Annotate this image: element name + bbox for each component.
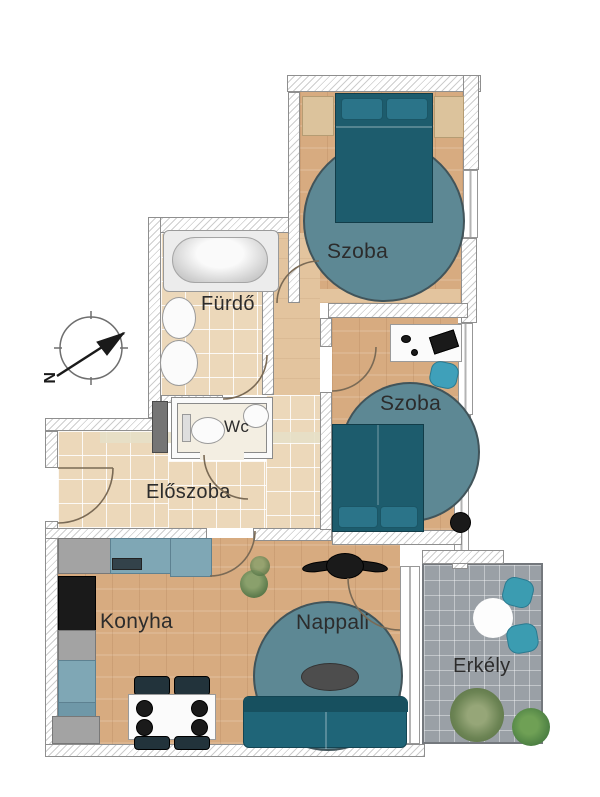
wall-top-bedroom1	[287, 75, 481, 92]
pillow	[380, 506, 418, 528]
sofa-back	[244, 697, 408, 712]
bedroom2-bed	[332, 424, 424, 532]
hallway-floor-mid	[168, 461, 266, 528]
sofa-cushion-split	[325, 712, 327, 749]
sofa	[243, 696, 407, 748]
wall-outer-left-upper	[148, 217, 161, 418]
wall-balcony-top	[422, 550, 504, 564]
wall-bedroom2-living-divider	[332, 530, 462, 545]
place-setting	[191, 719, 208, 736]
coffee-table	[301, 663, 359, 691]
plant-pot	[450, 512, 471, 533]
nightstand	[434, 96, 464, 138]
toilet-tank	[182, 414, 191, 442]
floor-plan: Szoba Fürdő Wc Előszoba Szoba	[0, 0, 600, 797]
washing-machine	[52, 716, 100, 744]
place-setting	[136, 700, 153, 717]
wall-left-above-door	[45, 431, 58, 468]
desk	[390, 324, 462, 362]
bedroom1-bed	[335, 93, 433, 223]
hallway-floor-right	[266, 395, 320, 528]
dining-chair	[134, 736, 170, 750]
balcony-plant	[450, 688, 504, 742]
kitchen-counter	[58, 660, 96, 704]
pillow	[338, 506, 378, 528]
wall-bedroom-divider	[328, 303, 468, 318]
desk-item	[411, 349, 418, 356]
place-setting	[136, 719, 153, 736]
wall-bedroom2-left-top	[320, 318, 332, 347]
dining-table	[128, 694, 216, 740]
pillow	[386, 98, 428, 120]
laptop-icon	[429, 329, 459, 354]
sink	[162, 297, 196, 339]
blanket-fold	[336, 126, 432, 128]
wall-right-1	[463, 75, 479, 170]
compass	[54, 311, 128, 385]
balcony-plant	[512, 708, 550, 746]
north-label: N	[40, 372, 57, 384]
dining-chair	[134, 676, 170, 696]
wall-step	[45, 418, 161, 431]
ceiling-fan-hub	[326, 553, 364, 579]
wall-bedroom2-left-bottom	[320, 392, 332, 530]
toilet	[191, 417, 225, 444]
wc-corner-sink	[243, 404, 269, 428]
compass-circle	[60, 317, 122, 379]
bathtub	[163, 230, 279, 292]
pillow	[341, 98, 383, 120]
dining-chair	[174, 736, 210, 750]
sink	[160, 340, 198, 386]
nightstand	[302, 96, 334, 136]
blanket-fold	[377, 425, 379, 505]
wall-bedroom1-left	[288, 92, 300, 303]
kitchen-counter	[170, 538, 212, 577]
kitchen-cabinet	[58, 630, 96, 662]
window-right-1	[463, 170, 478, 238]
duct-shaft	[152, 401, 168, 453]
north-arrow-icon: N	[40, 333, 124, 384]
desk-item	[401, 335, 411, 343]
dining-chair	[174, 676, 210, 696]
place-setting	[191, 700, 208, 717]
wc-door-gap	[200, 450, 244, 460]
stove	[58, 576, 96, 632]
fridge	[58, 538, 112, 574]
counter-accent	[112, 558, 142, 570]
bathtub-basin	[172, 237, 268, 283]
plant	[250, 556, 270, 576]
